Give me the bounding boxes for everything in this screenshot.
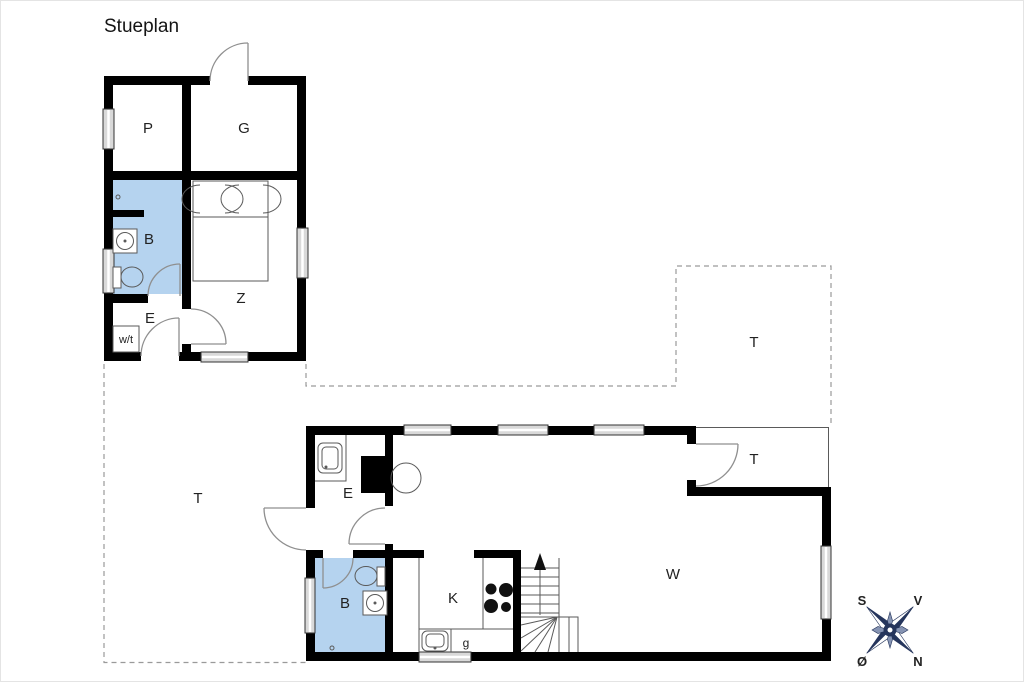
- room-label-terrace-west: T: [193, 490, 202, 507]
- room-label-main-entry: E: [343, 485, 353, 502]
- room-label-bedroom: Z: [236, 290, 245, 307]
- terrace-west-outline: [104, 364, 306, 663]
- bath-top-wall-right: [353, 550, 393, 558]
- main-bath-sink: [363, 591, 387, 615]
- annex-window-bedroom-east: [297, 228, 308, 278]
- annex-entry-door-opening: [141, 351, 179, 362]
- main-window-south: [419, 652, 471, 662]
- room-label-utility: w/t: [118, 334, 133, 346]
- double-bed: [182, 181, 281, 281]
- main-window-north-3: [594, 425, 644, 435]
- stove-burners: [484, 583, 513, 613]
- annex-wall-vertical-lower: [182, 344, 191, 352]
- room-label-kitchen: K: [448, 590, 458, 607]
- main-building: [264, 425, 831, 662]
- covered-terrace-outline: [696, 428, 829, 488]
- annex-bathroom-wall-stub: [113, 210, 144, 217]
- bath-top-wall-left: [315, 550, 323, 558]
- room-label-living-room: W: [666, 566, 681, 583]
- main-bottom-wall: [306, 652, 831, 661]
- terrace-door: [696, 444, 738, 486]
- main-window-north-1: [404, 425, 451, 435]
- room-label-covered-terrace: T: [749, 451, 758, 468]
- kitchen-wall-stub-left: [393, 550, 424, 558]
- annex-wall-horizontal: [113, 171, 297, 180]
- main-window-west: [305, 578, 315, 633]
- room-label-main-bath: B: [340, 595, 350, 612]
- room-label-appliance: g: [463, 636, 470, 650]
- annex-wall-vertical-upper: [182, 85, 191, 309]
- wood-stove: [391, 463, 421, 493]
- staircase: [521, 553, 578, 652]
- terrace-bottom-wall: [687, 487, 831, 496]
- compass-label-north: N: [913, 654, 922, 669]
- main-entry-inner-door: [349, 508, 385, 544]
- annex-window-bedroom-south: [201, 352, 248, 362]
- kitchen-sink: [422, 631, 448, 651]
- annex-bath-sink: [113, 229, 137, 253]
- annex-bedroom-door: [191, 309, 226, 344]
- room-label-annex-bath: B: [144, 231, 154, 248]
- compass-center-dot: [888, 628, 893, 633]
- page-title: Stueplan: [104, 16, 179, 37]
- stair-wall: [513, 550, 521, 652]
- room-label-guestroom: G: [238, 120, 250, 137]
- annex-window-p: [103, 109, 114, 149]
- annex-bathroom-bottom-wall: [113, 294, 148, 303]
- compass-label-west: V: [914, 593, 923, 608]
- compass-rose: S V Ø N: [857, 593, 923, 669]
- annex-top-door-opening: [210, 75, 248, 86]
- stair-direction-arrow: [534, 553, 546, 615]
- room-label-annex-entry: E: [145, 310, 155, 327]
- room-label-storage: P: [143, 120, 153, 137]
- main-window-east: [821, 546, 831, 619]
- floorplan-page: Stueplan: [0, 0, 1024, 682]
- main-front-door: [264, 508, 306, 550]
- chimney: [361, 456, 393, 493]
- entry-counter-sink: [315, 435, 346, 481]
- main-window-north-2: [498, 425, 548, 435]
- main-left-wall-upper: [306, 426, 315, 508]
- floorplan-drawing: Stueplan: [1, 1, 1024, 683]
- annex-building: [103, 43, 308, 362]
- compass-label-south: S: [858, 593, 867, 608]
- compass-label-east: Ø: [857, 654, 867, 669]
- annex-window-bath: [103, 249, 114, 293]
- terrace-outline-dashed: [104, 266, 831, 663]
- terrace-wall-stub-upper: [687, 426, 696, 444]
- room-label-terrace-northeast: T: [749, 334, 758, 351]
